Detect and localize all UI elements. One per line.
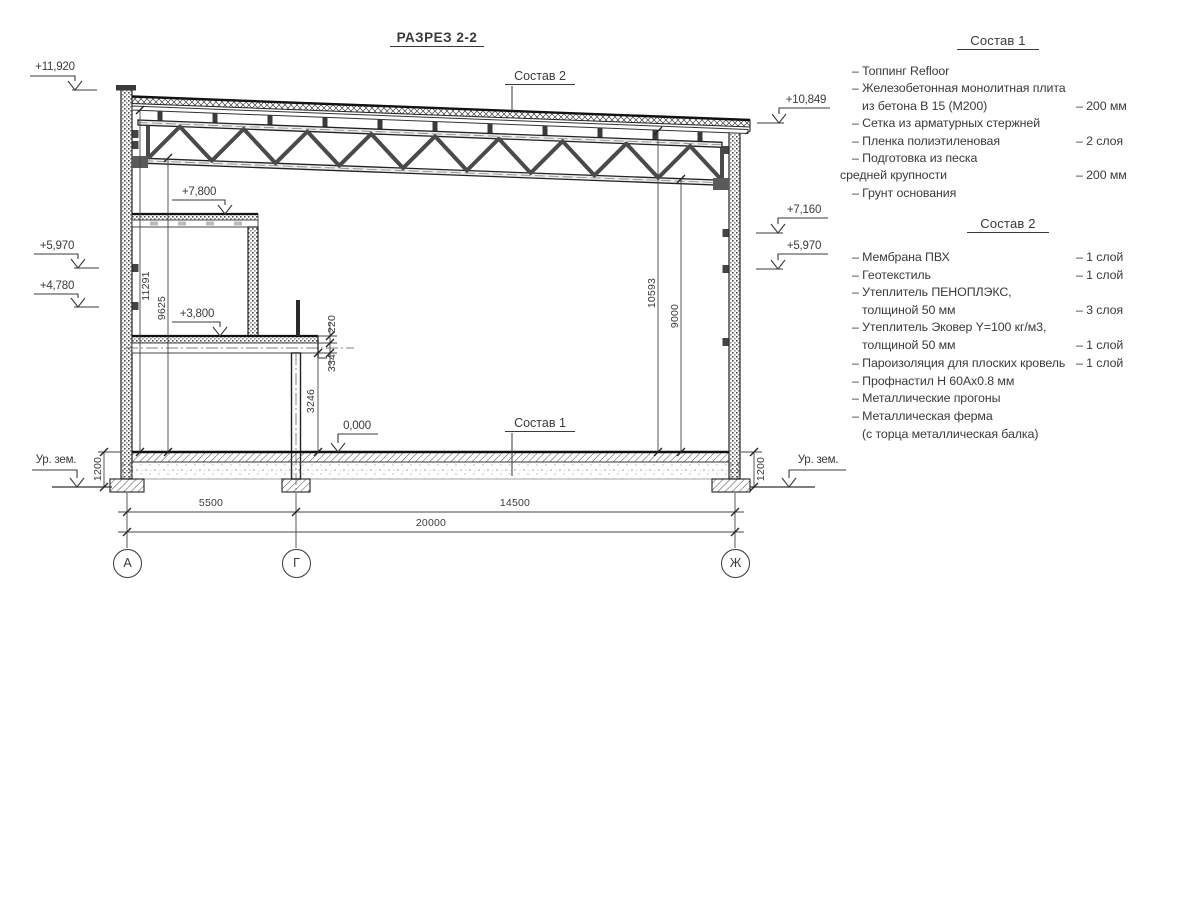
axis-bubble-zh: Ж xyxy=(721,549,750,578)
truss-bottom-chord xyxy=(143,158,726,185)
material-row: – Подготовка из песка xyxy=(852,151,1164,165)
right-wall xyxy=(727,132,742,480)
material-row: – Утеплитель Эковер Y=100 кг/м3, xyxy=(852,320,1164,334)
composition2-title: Состав 2 xyxy=(967,218,1049,233)
truss-bearing-right xyxy=(713,178,729,190)
elevation-left-mid: +5,970 xyxy=(27,240,87,252)
elevation-right-top: +10,849 xyxy=(776,94,836,106)
footings xyxy=(110,479,750,492)
dim-slab-thickness: 220 xyxy=(326,309,338,339)
elevation-mezz-lower: +3,800 xyxy=(167,308,227,320)
dim-span-g-zh: 14500 xyxy=(485,497,545,509)
mezz-wall xyxy=(248,227,258,336)
dim-left-inner: 9625 xyxy=(156,286,168,330)
material-row: – Утеплитель ПЕНОПЛЭКС, xyxy=(852,285,1164,299)
dim-base-right: 1200 xyxy=(755,447,767,491)
elevation-left-low: +4,780 xyxy=(27,280,87,292)
material-row: толщиной 50 мм– 1 слой xyxy=(852,338,1164,352)
drawing-title: РАЗРЕЗ 2-2 xyxy=(390,32,484,47)
material-row: средней крупности– 200 мм xyxy=(852,168,1164,182)
material-row: – Железобетонная монолитная плита xyxy=(852,81,1164,95)
material-row: – Грунт основания xyxy=(852,186,1164,200)
callout-roof-composition: Состав 2 xyxy=(505,70,575,85)
composition1-title: Состав 1 xyxy=(957,35,1039,50)
sand-bed xyxy=(132,462,729,479)
material-row: – Металлические прогоны xyxy=(852,391,1164,405)
material-row: – Пленка полиэтиленовая– 2 слоя xyxy=(852,134,1164,148)
dim-beam-depth: 334 xyxy=(326,348,338,378)
material-row: из бетона В 15 (М200)– 200 мм xyxy=(852,99,1164,113)
rail-post xyxy=(296,300,300,336)
material-row: – Профнастил Н 60Ах0.8 мм xyxy=(852,374,1164,388)
dim-left-total: 11291 xyxy=(140,264,152,308)
ground-level-label-right: Ур. зем. xyxy=(788,454,848,466)
material-row: – Топпинг Refloor xyxy=(852,64,1164,78)
elevation-zero: 0,000 xyxy=(327,420,387,432)
elevation-right-mid: +7,160 xyxy=(774,204,834,216)
dim-span-total: 20000 xyxy=(401,517,461,529)
dim-under-beam: 3246 xyxy=(305,379,317,423)
material-row: толщиной 50 мм– 3 слоя xyxy=(852,303,1164,317)
axis-bubble-a: А xyxy=(113,549,142,578)
elevation-right-low: +5,970 xyxy=(774,240,834,252)
dim-right-total: 10593 xyxy=(646,271,658,315)
drawing-sheet: РАЗРЕЗ 2-2 Состав 2 Состав 1 +11,920 +5,… xyxy=(0,0,1200,900)
dim-span-a-g: 5500 xyxy=(181,497,241,509)
parapet-cap xyxy=(116,85,136,91)
dim-base-left: 1200 xyxy=(92,447,104,491)
roof-truss xyxy=(132,120,729,190)
callout-floor-composition: Состав 1 xyxy=(505,417,575,432)
material-row: – Сетка из арматурных стержней xyxy=(852,116,1164,130)
elevation-left-top: +11,920 xyxy=(25,61,85,73)
ground-level-label-left: Ур. зем. xyxy=(26,454,86,466)
floor-slab xyxy=(123,452,738,479)
material-row: – Мембрана ПВХ– 1 слой xyxy=(852,250,1164,264)
dim-right-inner: 9000 xyxy=(669,294,681,338)
axis-bubble-g: Г xyxy=(282,549,311,578)
material-row: – Геотекстиль– 1 слой xyxy=(852,268,1164,282)
elevation-mezz-upper: +7,800 xyxy=(169,186,229,198)
material-row: – Металлическая ферма xyxy=(852,409,1164,423)
material-row: (с торца металлическая балка) xyxy=(852,427,1164,441)
material-row: – Пароизоляция для плоских кровель– 1 сл… xyxy=(852,356,1164,370)
